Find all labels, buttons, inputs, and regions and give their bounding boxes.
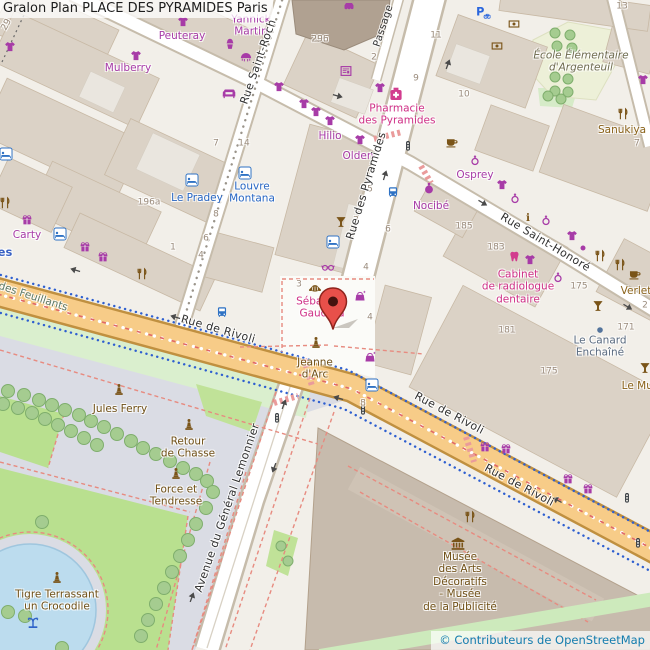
osm-attribution[interactable]: © Contributeurs de OpenStreetMap bbox=[431, 631, 650, 650]
map-canvas[interactable]: P i 29296211910137148641196a718518318117… bbox=[0, 0, 650, 650]
map-marker[interactable] bbox=[318, 287, 364, 331]
page-title: Gralon Plan PLACE DES PYRAMIDES Paris bbox=[0, 0, 273, 18]
